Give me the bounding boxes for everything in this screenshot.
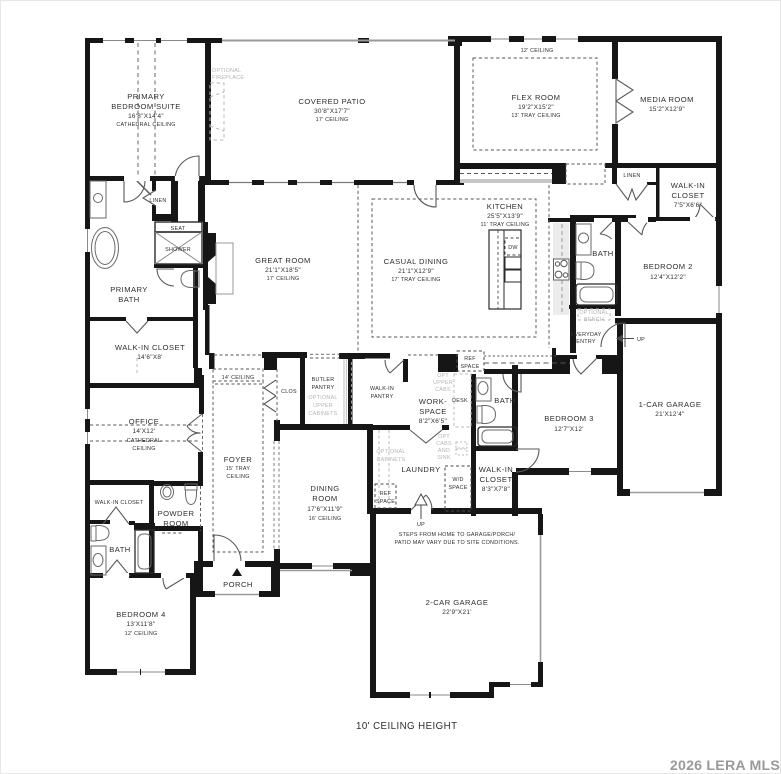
svg-text:21'1"X18'5": 21'1"X18'5" — [265, 267, 301, 274]
svg-text:13' TRAY CEILING: 13' TRAY CEILING — [511, 113, 560, 119]
svg-text:W/D: W/D — [452, 477, 463, 483]
svg-text:MEDIA ROOM: MEDIA ROOM — [640, 95, 694, 104]
svg-text:CLOSET: CLOSET — [671, 191, 704, 200]
svg-text:SHOWER: SHOWER — [165, 247, 191, 253]
svg-text:2026 LERA MLS: 2026 LERA MLS — [670, 758, 780, 774]
svg-text:LAUNDRY: LAUNDRY — [401, 465, 440, 474]
svg-text:BENCH: BENCH — [584, 317, 604, 323]
svg-text:OPT: OPT — [437, 373, 449, 379]
svg-text:21'1"X12'9": 21'1"X12'9" — [398, 268, 434, 275]
svg-text:OFFICE: OFFICE — [129, 417, 160, 426]
svg-text:LINEN: LINEN — [623, 173, 640, 179]
svg-text:WORK-: WORK- — [419, 397, 447, 406]
svg-text:SPACE: SPACE — [376, 499, 395, 505]
svg-text:PANTRY: PANTRY — [312, 385, 335, 391]
svg-text:FIREPLACE: FIREPLACE — [212, 75, 244, 81]
svg-text:SPACE: SPACE — [419, 407, 446, 416]
svg-text:17'6"X11'9": 17'6"X11'9" — [307, 506, 342, 513]
svg-text:17' CEILING: 17' CEILING — [267, 276, 300, 282]
svg-text:DW: DW — [508, 245, 518, 251]
svg-text:AND: AND — [438, 448, 450, 454]
svg-text:POWDER: POWDER — [158, 509, 195, 518]
svg-text:BATH: BATH — [109, 545, 131, 554]
svg-text:UP: UP — [417, 522, 425, 528]
svg-text:CABINETS: CABINETS — [309, 411, 338, 417]
svg-text:COVERED PATIO: COVERED PATIO — [298, 97, 365, 106]
svg-text:12'4"X12'2": 12'4"X12'2" — [650, 274, 686, 281]
svg-text:KITCHEN: KITCHEN — [487, 202, 523, 211]
svg-text:14'X12': 14'X12' — [132, 428, 155, 435]
svg-text:17' TRAY CEILING: 17' TRAY CEILING — [391, 277, 440, 283]
svg-text:SPACE: SPACE — [460, 364, 479, 370]
svg-text:OPTIONAL: OPTIONAL — [579, 310, 608, 316]
svg-text:BATH: BATH — [118, 295, 140, 304]
svg-text:8'3"X7'8": 8'3"X7'8" — [482, 486, 510, 493]
svg-text:EVERYDAY: EVERYDAY — [571, 332, 602, 338]
svg-text:PORCH: PORCH — [223, 580, 253, 589]
svg-text:ENTRY: ENTRY — [576, 339, 596, 345]
svg-text:BEDROOM 2: BEDROOM 2 — [643, 262, 693, 271]
svg-text:17' CEILING: 17' CEILING — [316, 117, 349, 123]
svg-text:10' CEILING HEIGHT: 10' CEILING HEIGHT — [356, 721, 457, 732]
svg-text:14' CEILING: 14' CEILING — [222, 375, 255, 381]
svg-text:WALK-IN CLOSET: WALK-IN CLOSET — [95, 500, 144, 506]
svg-text:CEILING: CEILING — [132, 446, 155, 452]
svg-text:UPPER: UPPER — [433, 380, 453, 386]
svg-text:ROOM: ROOM — [163, 519, 188, 528]
svg-text:BEDROOM SUITE: BEDROOM SUITE — [111, 102, 181, 111]
svg-text:PRIMARY: PRIMARY — [110, 285, 148, 294]
svg-text:DESK: DESK — [452, 398, 468, 404]
svg-text:GREAT ROOM: GREAT ROOM — [255, 256, 311, 265]
svg-text:PATIO MAY VARY DUE TO SITE CON: PATIO MAY VARY DUE TO SITE CONDITIONS. — [394, 540, 519, 546]
svg-text:CEILING: CEILING — [226, 474, 249, 480]
svg-text:CATHEDRAL CEILING: CATHEDRAL CEILING — [116, 122, 175, 128]
svg-text:WALK-IN: WALK-IN — [370, 386, 394, 392]
svg-text:11' TRAY CEILING: 11' TRAY CEILING — [481, 222, 530, 228]
svg-text:REF: REF — [464, 356, 476, 362]
svg-text:OPT: OPT — [438, 434, 450, 440]
svg-text:REF: REF — [380, 491, 392, 497]
svg-text:WALK-IN: WALK-IN — [479, 465, 514, 474]
svg-text:UP: UP — [637, 337, 645, 343]
svg-text:15' TRAY: 15' TRAY — [226, 466, 251, 472]
svg-text:13'X11'8": 13'X11'8" — [127, 621, 156, 628]
svg-text:OPTIONAL: OPTIONAL — [212, 68, 241, 74]
svg-text:STEPS FROM HOME TO GARAGE/PORC: STEPS FROM HOME TO GARAGE/PORCH/ — [399, 532, 516, 538]
svg-text:OPTIONAL: OPTIONAL — [308, 395, 337, 401]
svg-text:SINK: SINK — [437, 455, 451, 461]
svg-text:PRIMARY: PRIMARY — [127, 92, 165, 101]
svg-text:CLOSET: CLOSET — [479, 475, 512, 484]
svg-text:BATH: BATH — [592, 249, 614, 258]
svg-text:7'5"X6'6": 7'5"X6'6" — [674, 202, 702, 209]
svg-text:30'8"X17'7": 30'8"X17'7" — [314, 108, 350, 115]
svg-text:SEAT: SEAT — [171, 226, 186, 232]
svg-text:CABINETS: CABINETS — [377, 457, 406, 463]
svg-text:8'2"X6'5": 8'2"X6'5" — [419, 418, 447, 425]
svg-text:21'X12'4": 21'X12'4" — [655, 411, 684, 418]
svg-text:16' CEILING: 16' CEILING — [309, 516, 342, 522]
svg-text:BEDROOM 4: BEDROOM 4 — [116, 610, 166, 619]
svg-text:CLOS: CLOS — [281, 389, 297, 395]
svg-text:25'5"X13'9": 25'5"X13'9" — [487, 213, 523, 220]
svg-text:DINING: DINING — [310, 484, 339, 493]
svg-text:1-CAR GARAGE: 1-CAR GARAGE — [639, 400, 702, 409]
svg-text:16'8"X14'4": 16'8"X14'4" — [128, 113, 164, 120]
svg-text:15'2"X12'9": 15'2"X12'9" — [649, 106, 685, 113]
svg-text:FLEX ROOM: FLEX ROOM — [512, 93, 561, 102]
svg-text:OPTIONAL: OPTIONAL — [376, 449, 405, 455]
svg-text:2-CAR GARAGE: 2-CAR GARAGE — [426, 598, 489, 607]
svg-text:LINEN: LINEN — [149, 198, 166, 204]
svg-text:CABS: CABS — [435, 387, 451, 393]
svg-text:CABS: CABS — [436, 441, 452, 447]
svg-text:CATHEDRAL: CATHEDRAL — [127, 438, 162, 444]
svg-text:WALK-IN CLOSET: WALK-IN CLOSET — [115, 343, 185, 352]
svg-text:14'6"X8': 14'6"X8' — [137, 354, 163, 361]
svg-text:BATH: BATH — [494, 396, 516, 405]
svg-text:22'9"X21': 22'9"X21' — [442, 609, 471, 616]
svg-text:12' CEILING: 12' CEILING — [125, 631, 158, 637]
svg-text:12'7"X12': 12'7"X12' — [554, 426, 583, 433]
svg-text:BUTLER: BUTLER — [312, 377, 335, 383]
svg-text:12' CEILING: 12' CEILING — [521, 48, 554, 54]
svg-text:ROOM: ROOM — [312, 494, 337, 503]
svg-text:PANTRY: PANTRY — [371, 394, 394, 400]
svg-text:CASUAL DINING: CASUAL DINING — [384, 257, 449, 266]
svg-text:FOYER: FOYER — [224, 455, 252, 464]
svg-text:BEDROOM 3: BEDROOM 3 — [544, 414, 594, 423]
svg-text:19'2"X15'2": 19'2"X15'2" — [518, 104, 554, 111]
svg-text:UPPER: UPPER — [313, 403, 333, 409]
svg-text:WALK-IN: WALK-IN — [671, 181, 706, 190]
svg-text:SPACE: SPACE — [448, 485, 467, 491]
